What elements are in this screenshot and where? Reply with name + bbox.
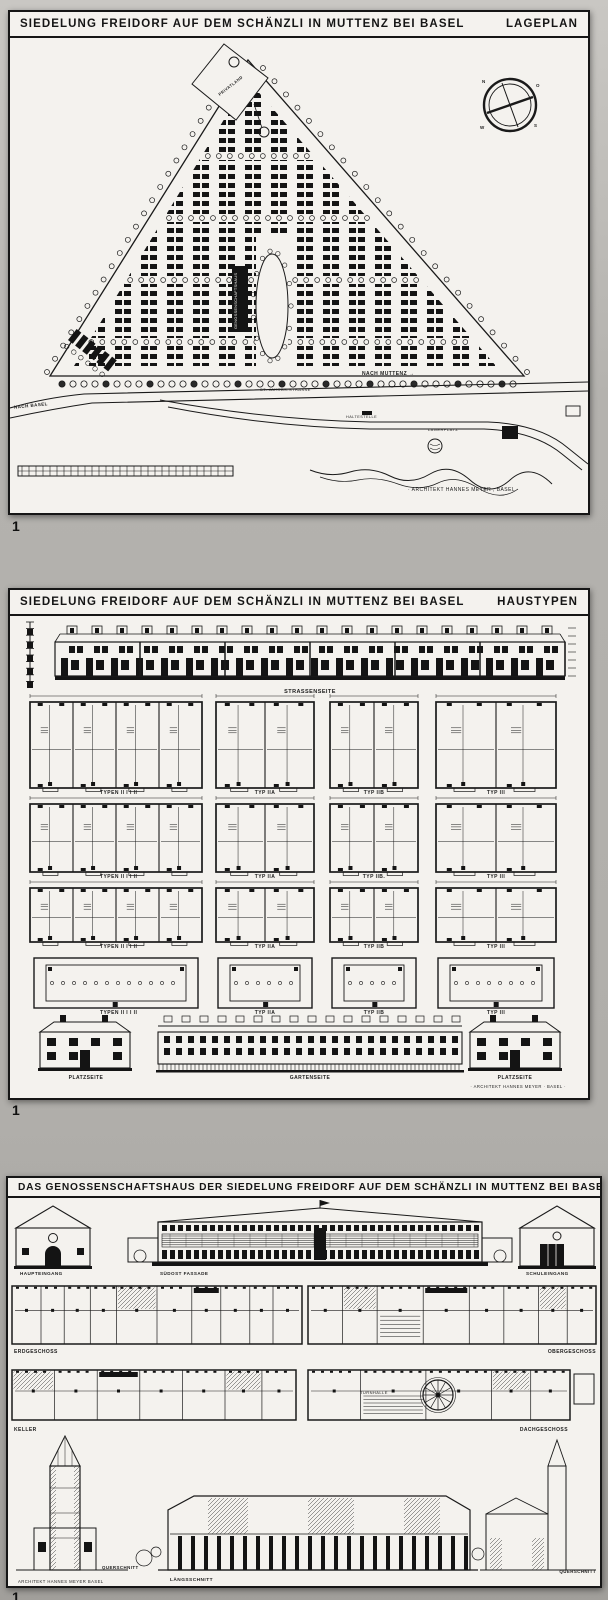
- architect-signature-1: · ARCHITEKT HANNES MEYER , BASEL ·: [408, 488, 519, 493]
- st-jakobstrasse-label: ST. JAKOBS-STRASSE: [260, 388, 311, 392]
- haustypen-title: SIEDELUNG FREIDORF AUF DEM SCHÄNZLI IN M…: [20, 596, 465, 608]
- site-plan-drawing: [10, 38, 588, 513]
- row1-typ2b-label: TYP IIB: [364, 791, 385, 796]
- compass-n-label: N: [482, 80, 486, 85]
- laengsschnitt-label: LÄNGSSCHNITT: [170, 1579, 213, 1584]
- dachgeschoss-label: DACHGESCHOSS: [520, 1428, 568, 1433]
- genossenschaftshaus-label: GENOSSENSCHAFTSHAUS: [234, 271, 238, 329]
- row4-typ3-label: TYP III: [487, 1011, 505, 1016]
- cooperative-house-drawing: [8, 1198, 600, 1588]
- querschnitt-left-label: QUERSCHNITT: [102, 1566, 139, 1570]
- haustypen-title-bar: SIEDELUNG FREIDORF AUF DEM SCHÄNZLI IN M…: [10, 590, 588, 616]
- strassenseite-label: STRASSENSEITE: [284, 690, 336, 696]
- gartenseite-label: GARTENSEITE: [290, 1076, 331, 1081]
- row1-typ3-label: TYP III: [487, 791, 505, 796]
- haustypen-drawing-area: STRASSENSEITE TYPEN II I I II TYP IIA TY…: [10, 616, 588, 1100]
- figure-number-2: 1: [12, 1102, 20, 1118]
- row2-typ2b-label: TYP IIB.: [363, 875, 385, 880]
- row3-typ3-label: TYP III: [487, 945, 505, 950]
- lageplan-title-type: LAGEPLAN: [506, 18, 578, 30]
- row2-typ2a-label: TYP IIA: [255, 875, 276, 880]
- row3-typ2b-label: TYP IIB: [364, 945, 385, 950]
- figure-number-3: 1: [12, 1589, 20, 1600]
- genossenschaftshaus-title: DAS GENOSSENSCHAFTSHAUS DER SIEDELUNG FR…: [18, 1182, 600, 1193]
- schuleingang-label: SCHULEINGANG: [526, 1272, 569, 1277]
- lageplan-drawing-area: PRIVATLAND N O S W GENOSSENSCHAFTSHAUS S…: [10, 38, 588, 513]
- lageplan-plate: SIEDELUNG FREIDORF AUF DEM SCHÄNZLI IN M…: [8, 10, 590, 515]
- turnhalle-label: TURNHALLE: [360, 1391, 388, 1395]
- haustypen-plate: SIEDELUNG FREIDORF AUF DEM SCHÄNZLI IN M…: [8, 588, 590, 1100]
- scanned-page: SIEDELUNG FREIDORF AUF DEM SCHÄNZLI IN M…: [0, 0, 608, 1600]
- suedost-fassade-label: SÜDOST FASSADE: [160, 1272, 208, 1277]
- row4-typ2a-label: TYP IIA: [255, 1011, 276, 1016]
- lageplan-title-bar: SIEDELUNG FREIDORF AUF DEM SCHÄNZLI IN M…: [10, 12, 588, 38]
- haupteingang-label: HAUPTEINGANG: [20, 1272, 63, 1277]
- nach-muttenz-label: NACH MUTTENZ →: [362, 372, 414, 377]
- lageplan-title: SIEDELUNG FREIDORF AUF DEM SCHÄNZLI IN M…: [20, 18, 465, 30]
- obergeschoss-label: OBERGESCHOSS: [548, 1350, 596, 1355]
- compass-s-label: S: [534, 124, 537, 129]
- compass-w-label: W: [480, 126, 485, 131]
- architect-signature-3: ARCHITEKT HANNES MEYER BASEL: [18, 1580, 104, 1584]
- haustypen-title-type: HAUSTYPEN: [497, 596, 578, 608]
- row3-typen-label: TYPEN II I I II: [100, 945, 137, 950]
- row1-typen-label: TYPEN II I I II: [100, 791, 137, 796]
- row4-typen-label: TYPEN II I I II: [100, 1011, 137, 1016]
- figure-number-1: 1: [12, 518, 20, 534]
- platzseite-left-label: PLATZSEITE: [69, 1076, 104, 1081]
- row1-typ2a-label: TYP IIA: [255, 791, 276, 796]
- genossenschaftshaus-title-bar: DAS GENOSSENSCHAFTSHAUS DER SIEDELUNG FR…: [8, 1178, 600, 1198]
- row3-typ2a-label: TYP IIA: [255, 945, 276, 950]
- querschnitt-right-label: QUERSCHNITT: [559, 1570, 596, 1574]
- row2-typen-label: TYPEN II I I II: [100, 875, 137, 880]
- genossenschaftshaus-plate: DAS GENOSSENSCHAFTSHAUS DER SIEDELUNG FR…: [6, 1176, 602, 1588]
- erdgeschoss-label: ERDGESCHOSS: [14, 1350, 58, 1355]
- platzseite-right-label: PLATZSEITE: [498, 1076, 533, 1081]
- architect-signature-2: · ARCHITEKT HANNES MEYER · BASEL ·: [470, 1085, 566, 1089]
- lagerplatz-label: LAGERPLATZ: [428, 428, 458, 432]
- haltestelle-label: HALTESTELLE: [346, 416, 377, 420]
- keller-label: KELLER: [14, 1428, 37, 1433]
- compass-o-label: O: [536, 84, 540, 89]
- genossenschaftshaus-drawing-area: HAUPTEINGANG SÜDOST FASSADE SCHULEINGANG…: [8, 1198, 600, 1588]
- row2-typ3-label: TYP III: [487, 875, 505, 880]
- row4-typ2b-label: TYP IIB: [364, 1011, 385, 1016]
